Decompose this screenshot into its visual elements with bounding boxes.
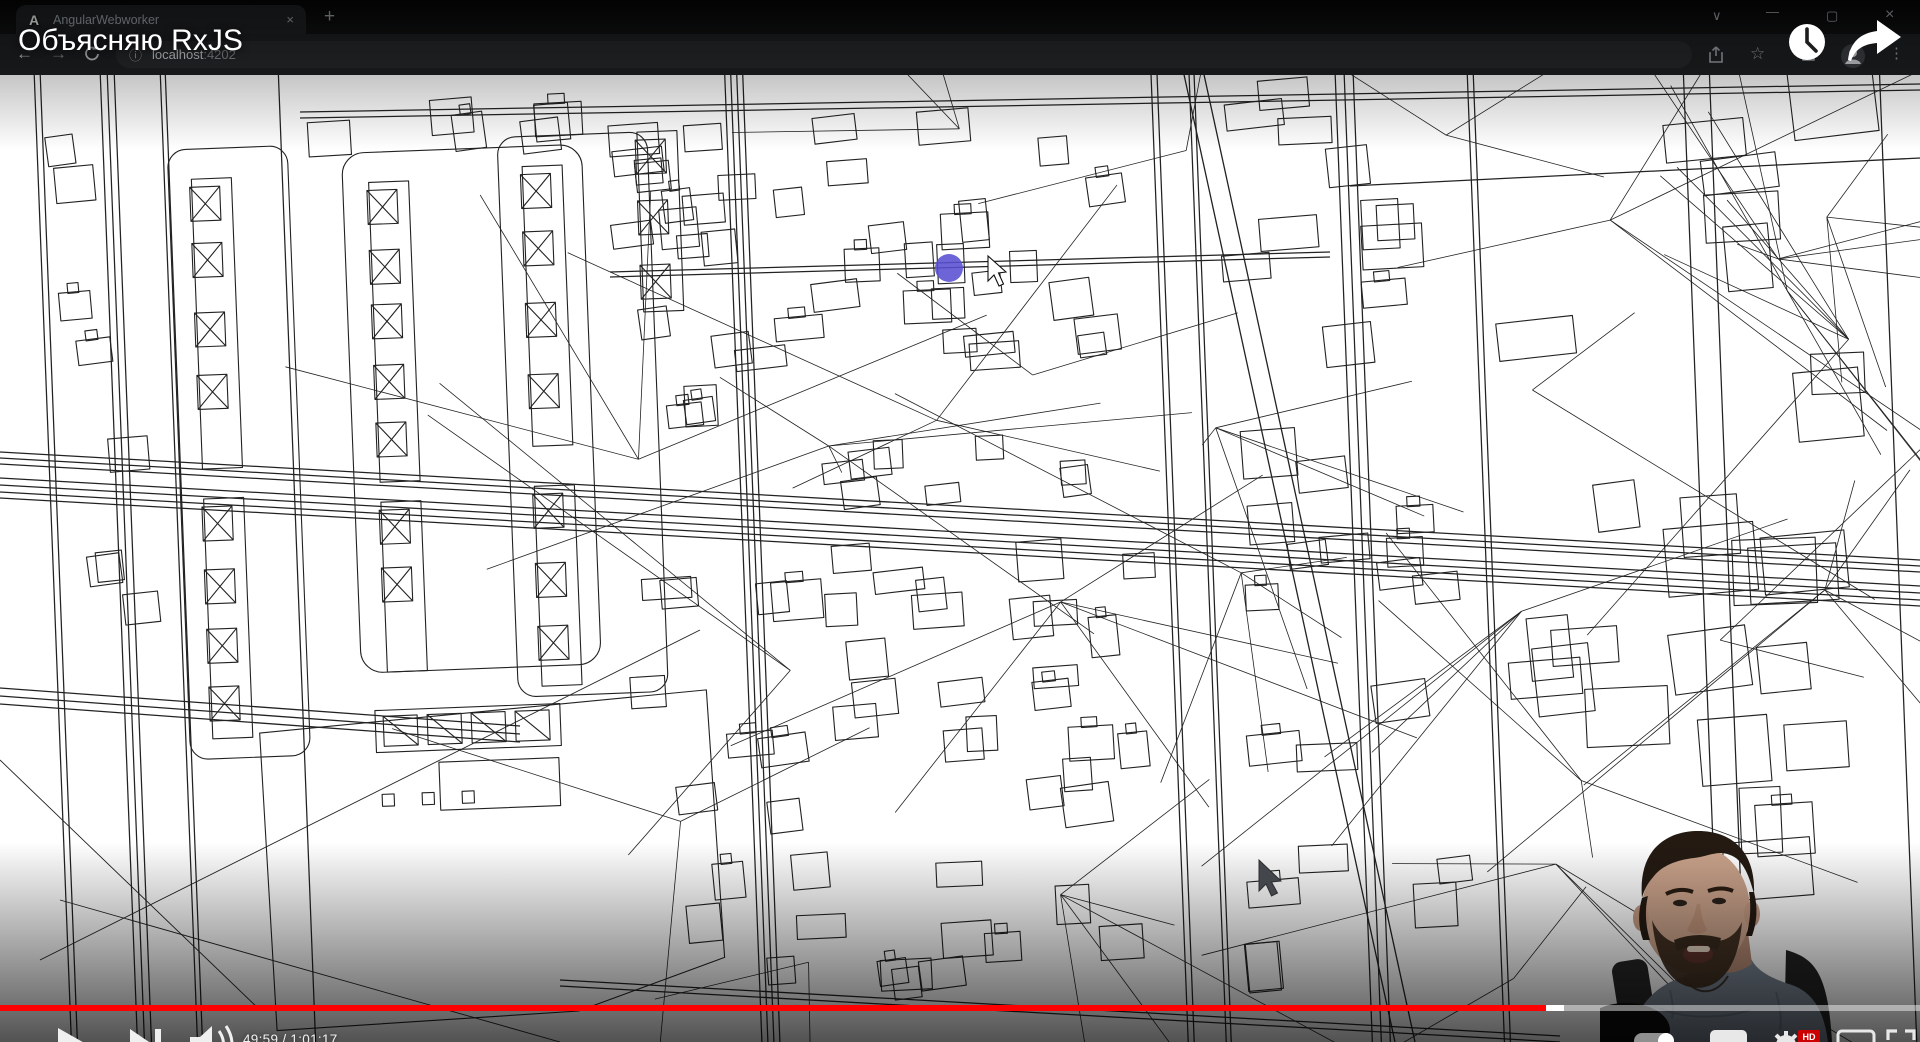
window-restore-button[interactable]: ▢: [1826, 8, 1838, 24]
new-tab-button[interactable]: +: [324, 6, 335, 28]
window-close-button[interactable]: ×: [1885, 6, 1894, 24]
url-bar[interactable]: ⓘ localhost:4202: [116, 41, 1692, 68]
browser-tabstrip: A AngularWebworker × + ∨ — ▢ ×: [0, 0, 1920, 34]
youtube-fullscreen-player: A AngularWebworker × + ∨ — ▢ × ← → ⓘ loc…: [0, 0, 1920, 1042]
progress-bar-buffered[interactable]: [1564, 1005, 1920, 1011]
progress-bar-hover[interactable]: [1546, 1005, 1564, 1011]
quality-hd-badge[interactable]: HD: [1798, 1030, 1820, 1042]
window-chevron-icon[interactable]: ∨: [1712, 8, 1722, 24]
video-title-overlay[interactable]: Объясняю RxJS: [18, 24, 243, 58]
progress-bar-played[interactable]: [0, 1005, 1546, 1011]
bookmark-star-icon[interactable]: ☆: [1750, 43, 1765, 65]
window-minimize-button[interactable]: —: [1766, 4, 1779, 19]
selected-node-marker[interactable]: [935, 254, 963, 282]
eye: [1712, 898, 1726, 904]
extensions-icon[interactable]: [1800, 43, 1820, 65]
browser-toolbar: ← → ⓘ localhost:4202 ☆ ⋮: [0, 34, 1920, 75]
share-page-icon[interactable]: [1706, 43, 1730, 67]
eye: [1673, 900, 1687, 906]
profile-avatar-icon[interactable]: [1840, 43, 1867, 70]
tab-close-icon[interactable]: ×: [286, 12, 294, 27]
browser-menu-icon[interactable]: ⋮: [1889, 43, 1904, 65]
time-display: 49:59 / 1:01:17: [243, 1032, 338, 1042]
